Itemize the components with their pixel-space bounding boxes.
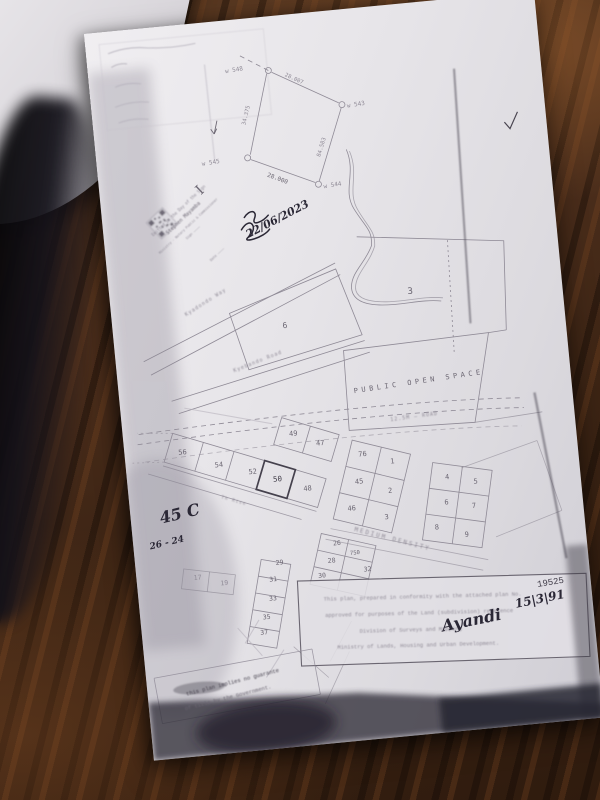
- check-mark: [504, 112, 519, 129]
- plot-number: 9: [464, 530, 469, 538]
- plot-number: 750: [350, 550, 360, 557]
- plot-number: 3: [384, 513, 389, 521]
- plot-number: 19: [220, 579, 229, 588]
- survey-dimension: 28.000: [266, 172, 289, 186]
- survey-dimension: 28.007: [284, 72, 305, 86]
- plot-number: 28: [327, 556, 336, 565]
- plot-number: 48: [303, 484, 312, 493]
- survey-point-label: w 545: [201, 158, 220, 168]
- survey-point-label: w 548: [225, 65, 244, 75]
- plot-number: 49: [289, 429, 298, 438]
- plot-number: 47: [316, 439, 325, 448]
- plot-number: 32: [363, 565, 372, 574]
- plot-number: 31: [269, 575, 278, 584]
- road-label: 12.5M — ROAD: [390, 411, 438, 423]
- plot-number: 8: [434, 523, 439, 531]
- plot-number: 54: [214, 461, 223, 470]
- plot-number: 45: [355, 477, 364, 486]
- plot-grid-east: [422, 463, 492, 548]
- parcel-number: 3: [407, 287, 413, 297]
- parcel-number: 6: [282, 321, 288, 330]
- plot-number: 30: [318, 571, 327, 580]
- handwritten-date: 22/06/2023: [243, 197, 312, 241]
- plot-number: 26: [333, 539, 342, 548]
- survey-point-label: w 543: [346, 100, 365, 110]
- plot-number: 56: [178, 448, 187, 457]
- road-label: Th Rise: [220, 494, 247, 507]
- plot-number: 2: [388, 487, 393, 495]
- plot-number: 46: [347, 504, 356, 513]
- plot-number: 4: [445, 473, 450, 481]
- plot-number: 1: [390, 457, 395, 465]
- plot-grid-center: [333, 440, 410, 533]
- plot-number: 17: [193, 573, 202, 582]
- stamp-text: Date ————: [209, 246, 226, 262]
- photo-of-survey-plan: w 548w 543w 545w 54428.00734.37528.00084…: [0, 0, 600, 800]
- plot-strip-south: [247, 559, 291, 648]
- survey-point-label: w 544: [323, 180, 342, 190]
- plot-number: 5: [473, 477, 478, 485]
- survey-plan-drawing: w 548w 543w 545w 54428.00734.37528.00084…: [84, 0, 600, 761]
- dashed-road: [136, 392, 525, 462]
- plot-number: 7: [472, 502, 477, 510]
- plot-number: 29: [275, 558, 284, 567]
- plot-number: 76: [358, 450, 367, 459]
- road-label: Kyadondo Way: [184, 287, 228, 318]
- survey-dimension: 84.583: [316, 137, 327, 158]
- plot-number: 50: [273, 474, 283, 484]
- plot-number: 52: [248, 467, 257, 476]
- plot-number: 6: [444, 498, 449, 506]
- survey-dimension: 34.375: [241, 105, 251, 126]
- plot-number: 33: [269, 594, 278, 603]
- survey-plan-page: w 548w 543w 545w 54428.00734.37528.00084…: [84, 0, 600, 761]
- zone-label: PUBLIC OPEN SPACE: [353, 368, 484, 395]
- plot-number: 35: [262, 613, 271, 622]
- plot-number: 37: [260, 628, 269, 637]
- stream: [338, 142, 443, 310]
